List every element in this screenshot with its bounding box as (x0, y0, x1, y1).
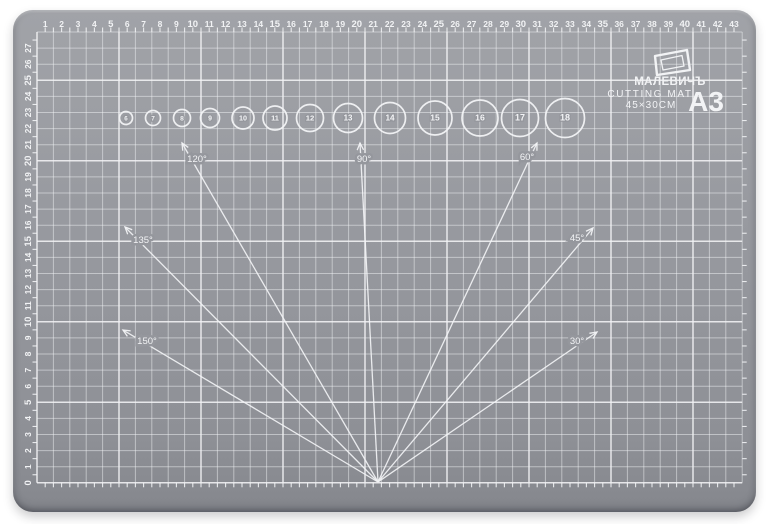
top-ruler-number: 11 (205, 19, 214, 29)
left-ruler-number: 21 (23, 140, 33, 150)
top-ruler-number: 27 (467, 19, 477, 29)
left-ruler-number: 0 (23, 480, 34, 485)
circle-number: 10 (239, 114, 247, 123)
top-ruler-number: 6 (125, 19, 130, 29)
left-ruler-number: 3 (23, 432, 33, 437)
circle-template-12: 12 (297, 105, 324, 132)
canvas-frame-inner-icon (661, 56, 684, 71)
circle-number: 6 (124, 116, 128, 123)
top-ruler-number: 4 (92, 19, 97, 29)
format-label: A3 (688, 86, 724, 117)
angle-label: 60° (520, 152, 535, 163)
top-ruler-number: 34 (582, 19, 592, 29)
left-ruler-number: 23 (23, 108, 33, 118)
top-ruler-number: 25 (434, 19, 445, 30)
brand-logo: МАЛЕВИЧЪCUTTING MAT45×30CMA3 (607, 50, 723, 117)
top-ruler-number: 10 (188, 19, 199, 30)
top-ruler-number: 7 (141, 19, 146, 29)
top-ruler-number: 24 (418, 19, 428, 29)
top-ruler-number: 14 (254, 19, 264, 29)
top-ruler: 1234567891011121314151617181920212223242… (43, 19, 739, 30)
angle-label: 135° (133, 235, 153, 246)
top-ruler-number: 31 (532, 19, 542, 29)
angle-line (360, 143, 378, 482)
top-ruler-number: 3 (76, 19, 81, 29)
product-name: CUTTING MAT (607, 89, 692, 100)
top-ruler-number: 26 (450, 19, 460, 29)
circle-number: 12 (306, 114, 315, 123)
top-ruler-number: 5 (108, 19, 114, 30)
left-ruler-number: 22 (23, 124, 33, 134)
angle-label: 150° (137, 336, 157, 347)
left-ruler-number: 10 (23, 317, 34, 328)
left-ruler-number: 2 (23, 448, 33, 453)
top-ruler-number: 21 (368, 19, 378, 29)
top-ruler-number: 18 (319, 19, 329, 29)
angle-line (378, 228, 593, 482)
angle-ray-60: 60° (378, 143, 537, 482)
circle-number: 18 (560, 113, 570, 123)
circle-template-17: 17 (502, 100, 539, 137)
left-ruler-number: 8 (23, 351, 33, 356)
angle-ray-45: 45° (378, 228, 593, 482)
circle-number: 8 (180, 116, 184, 123)
angle-line (378, 143, 537, 482)
top-ruler-number: 13 (237, 19, 247, 29)
angle-ray-90: 90° (357, 143, 378, 482)
left-ruler-number: 5 (23, 399, 34, 405)
top-ruler-number: 1 (43, 19, 48, 29)
top-ruler-number: 16 (286, 19, 296, 29)
left-ruler-number: 11 (23, 301, 33, 310)
angle-label: 120° (187, 154, 207, 165)
left-ruler-number: 16 (23, 220, 33, 230)
photo-background: 1234567891011121314151617181920212223242… (0, 0, 768, 524)
top-ruler-number: 33 (565, 19, 575, 29)
top-ruler-number: 30 (516, 19, 527, 30)
top-ruler-number: 41 (696, 19, 706, 29)
top-ruler-number: 43 (729, 19, 739, 29)
circle-template-6: 6 (120, 112, 133, 125)
left-ruler-number: 15 (23, 235, 34, 246)
left-ruler-number: 4 (23, 416, 33, 421)
top-ruler-number: 32 (549, 19, 559, 29)
circle-number: 9 (208, 116, 212, 123)
top-ruler-number: 20 (352, 19, 363, 30)
top-ruler-number: 8 (158, 19, 163, 29)
circle-number: 13 (344, 114, 353, 123)
circle-number: 7 (151, 116, 155, 123)
left-ruler-number: 6 (23, 384, 33, 389)
top-ruler-number: 38 (647, 19, 657, 29)
top-ruler-number: 2 (59, 19, 64, 29)
circle-templates: 6789101112131415161718 (120, 99, 585, 138)
left-ruler-number: 14 (23, 252, 33, 262)
top-ruler-number: 17 (303, 19, 313, 29)
circle-number: 11 (271, 114, 279, 123)
angle-guides: 150°135°120°90°60°45°30° (123, 143, 597, 482)
left-ruler-number: 9 (23, 335, 33, 340)
circle-number: 17 (515, 113, 525, 123)
top-ruler-number: 15 (270, 19, 281, 30)
top-ruler-number: 23 (401, 19, 411, 29)
angle-label: 30° (570, 336, 585, 347)
top-ruler-number: 29 (500, 19, 510, 29)
circle-number: 15 (430, 113, 440, 123)
top-ruler-number: 19 (336, 19, 346, 29)
circle-template-9: 9 (201, 109, 220, 128)
top-ruler-number: 36 (614, 19, 624, 29)
left-ruler-number: 20 (23, 156, 34, 167)
left-ruler-number: 25 (23, 74, 34, 85)
angle-label: 90° (357, 154, 372, 165)
top-ruler-number: 35 (598, 19, 609, 30)
top-ruler-number: 22 (385, 19, 395, 29)
circle-number: 14 (385, 114, 395, 123)
top-ruler-number: 39 (664, 19, 674, 29)
left-ruler-number: 27 (23, 43, 33, 53)
top-ruler-number: 37 (631, 19, 641, 29)
top-ruler-number: 9 (174, 19, 179, 29)
left-ruler-number: 26 (23, 59, 33, 69)
left-ruler-number: 1 (23, 464, 33, 469)
top-ruler-number: 12 (221, 19, 231, 29)
top-ruler-number: 42 (713, 19, 723, 29)
left-ruler-number: 17 (23, 204, 33, 214)
top-ruler-number: 40 (680, 19, 691, 30)
left-ruler-number: 24 (23, 91, 33, 101)
left-ruler-number: 13 (23, 269, 33, 279)
left-ruler-number: 19 (23, 172, 33, 182)
left-ruler-number: 18 (23, 188, 33, 198)
angle-label: 45° (570, 233, 585, 244)
circle-number: 16 (475, 113, 485, 123)
left-ruler: 0123456789101112131415161718192021222324… (23, 43, 34, 485)
left-ruler-number: 7 (23, 367, 33, 372)
top-ruler-number: 28 (483, 19, 493, 29)
mat-artwork: 1234567891011121314151617181920212223242… (0, 0, 768, 524)
mat-dimensions: 45×30CM (626, 100, 677, 111)
left-ruler-number: 12 (23, 285, 33, 295)
